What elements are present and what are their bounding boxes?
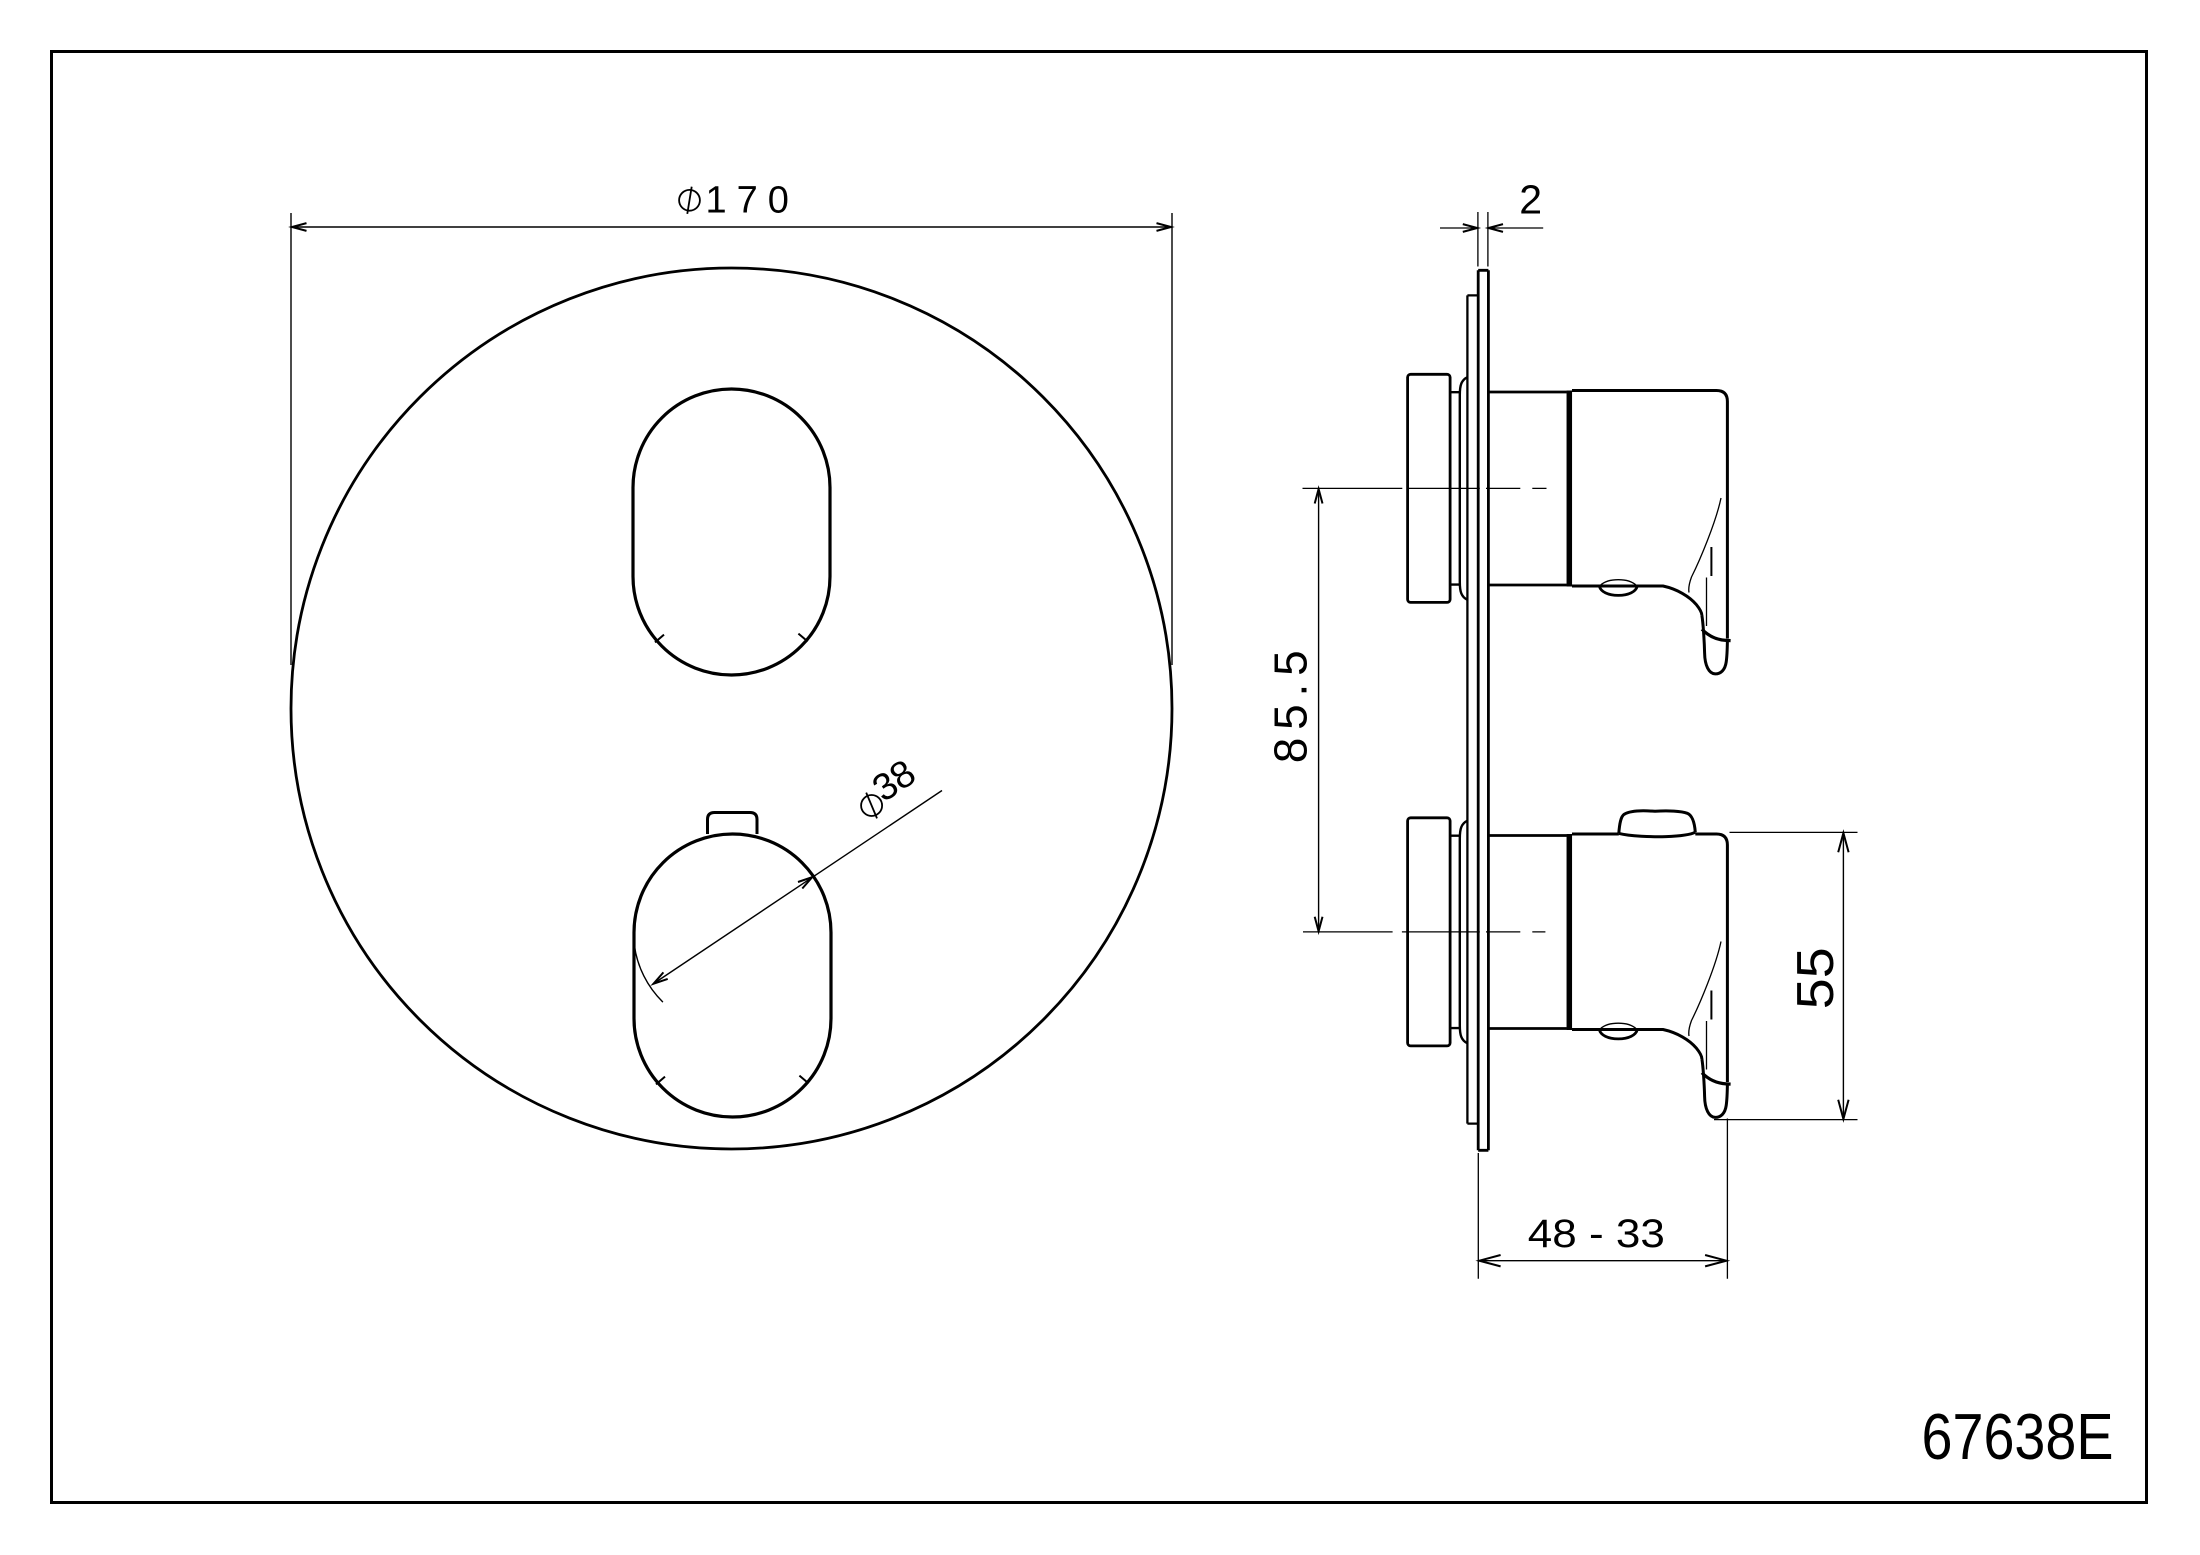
svg-text:170: 170 [706,179,799,221]
svg-text:67638E: 67638E [1922,1401,2114,1473]
svg-text:48 - 33: 48 - 33 [1528,1212,1665,1256]
svg-text:85.5: 85.5 [1265,645,1317,763]
svg-text:55: 55 [1787,947,1845,1009]
svg-text:2: 2 [1519,177,1542,223]
